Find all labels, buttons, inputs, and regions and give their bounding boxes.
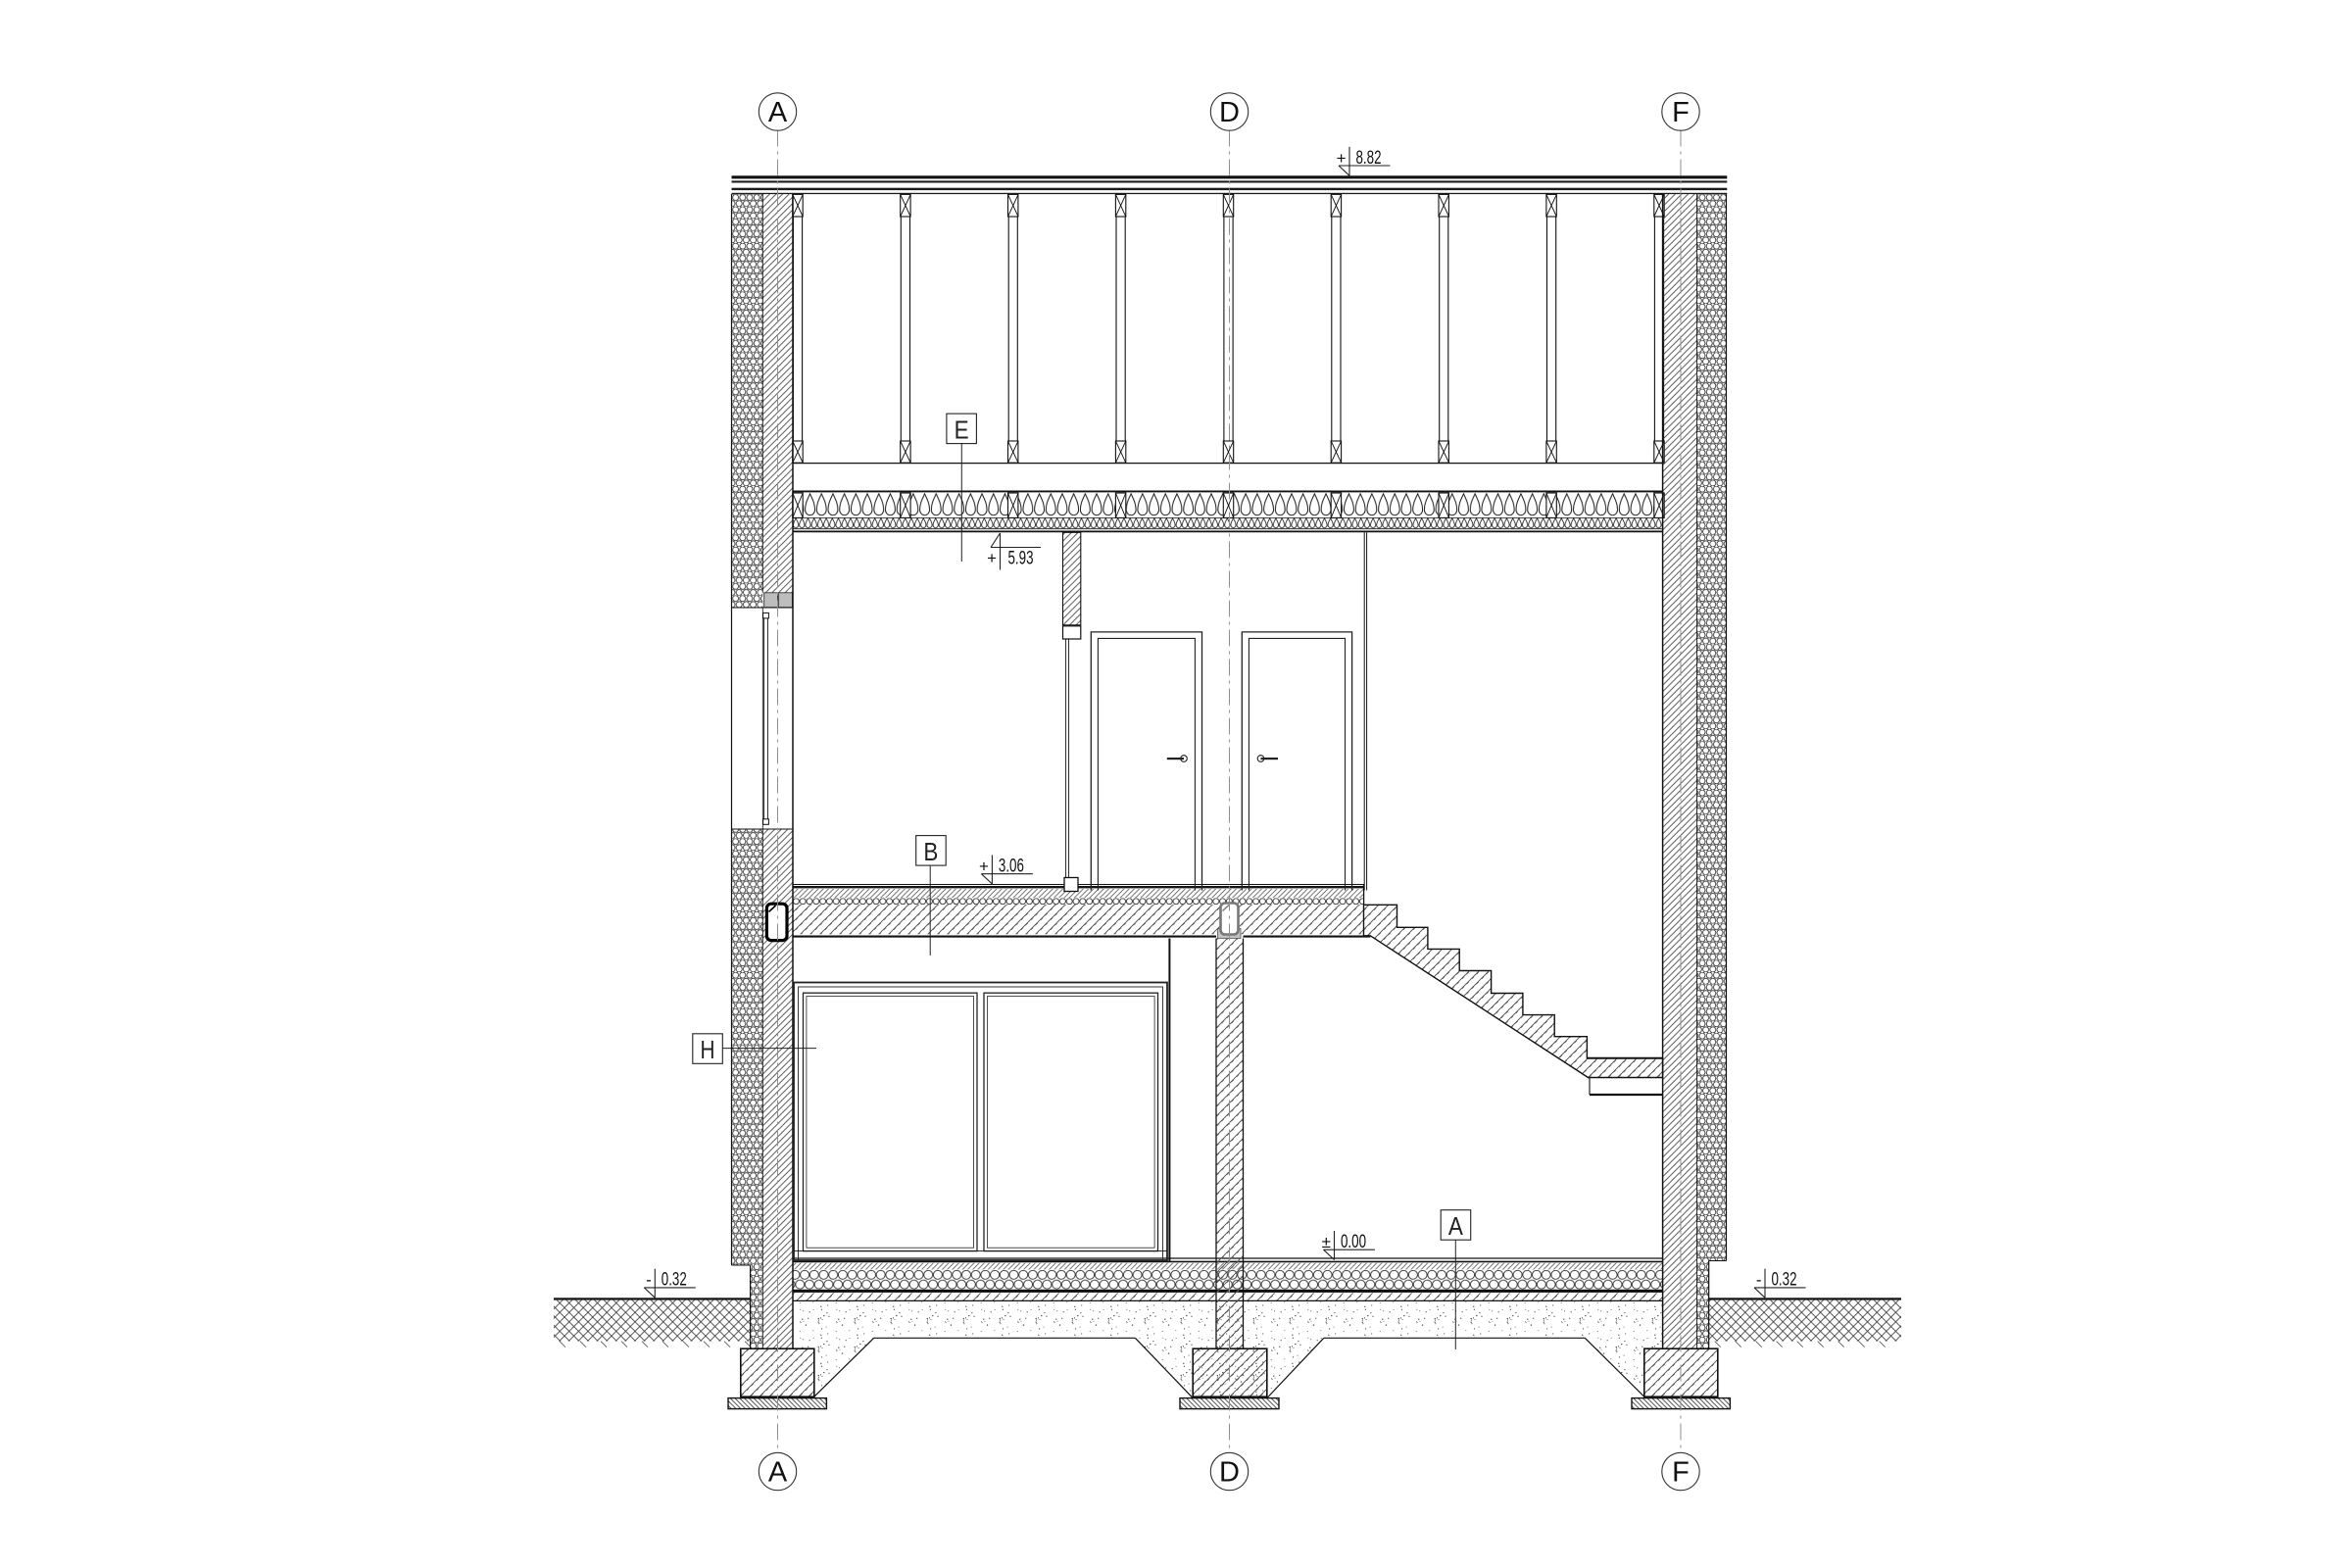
svg-text:0.32: 0.32 xyxy=(661,1270,687,1291)
svg-text:+: + xyxy=(979,857,989,876)
svg-text:F: F xyxy=(1672,1457,1690,1489)
svg-text:3.06: 3.06 xyxy=(999,857,1024,877)
svg-text:A: A xyxy=(1448,1211,1464,1241)
svg-text:D: D xyxy=(1219,97,1240,128)
svg-text:8.82: 8.82 xyxy=(1356,148,1382,169)
svg-text:-: - xyxy=(646,1271,652,1290)
svg-text:±: ± xyxy=(1322,1233,1331,1251)
svg-text:0.32: 0.32 xyxy=(1772,1270,1797,1291)
svg-text:0.00: 0.00 xyxy=(1341,1232,1366,1252)
svg-text:+: + xyxy=(1337,149,1347,168)
svg-text:B: B xyxy=(923,837,938,866)
svg-text:5.93: 5.93 xyxy=(1008,549,1034,569)
svg-text:A: A xyxy=(768,1457,788,1489)
svg-text:D: D xyxy=(1219,1457,1240,1489)
svg-text:-: - xyxy=(1756,1271,1762,1290)
svg-text:+: + xyxy=(987,549,997,567)
svg-text:E: E xyxy=(955,415,969,444)
svg-text:F: F xyxy=(1672,97,1690,128)
svg-text:A: A xyxy=(768,97,788,128)
svg-text:H: H xyxy=(701,1035,715,1064)
